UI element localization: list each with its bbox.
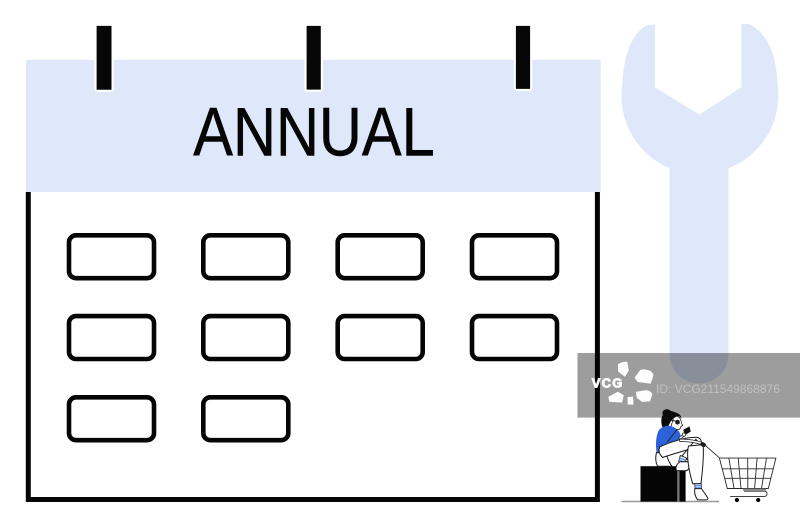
svg-text:ANNUAL: ANNUAL	[193, 94, 435, 171]
svg-text:VCG: VCG	[592, 376, 624, 391]
svg-text:ID: VCG211549868876: ID: VCG211549868876	[656, 382, 780, 396]
